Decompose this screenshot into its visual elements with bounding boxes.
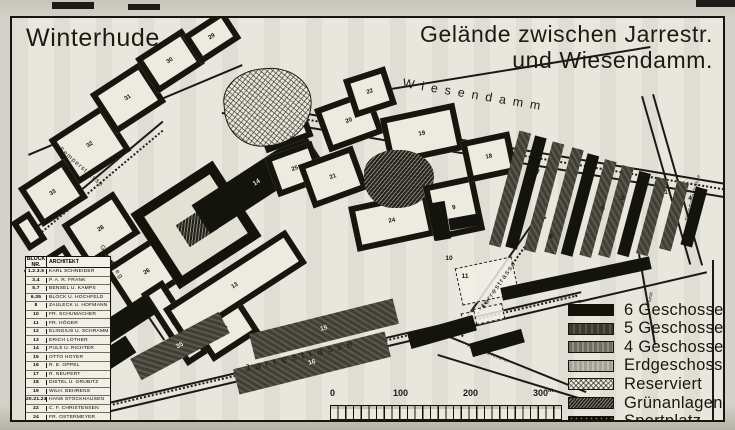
architect-row-name: Fr. Schumacher — [47, 312, 96, 317]
architect-row: 15Otto Hoyer — [26, 353, 110, 362]
scale-tick-200: 200 — [463, 388, 478, 398]
block-number: 30 — [166, 57, 175, 66]
block-number: 6 — [601, 206, 605, 213]
legend-item-g6: 6 Geschosse — [568, 302, 724, 318]
architect-row-block: 18 — [26, 380, 47, 385]
legend-item-gruen: Grünanlagen — [568, 395, 723, 411]
architect-table-rows: 1.2.3.5Karl Schneider3.4P. A. R. Frank5.… — [26, 268, 110, 422]
map-block-10: 10 — [442, 254, 456, 264]
architect-table-header-block: Block Nr. — [26, 256, 47, 268]
scanned-map-page: 3231302933282623427171413151635232025212… — [0, 0, 735, 430]
legend-swatch-res — [568, 378, 614, 390]
block-number: 33 — [49, 189, 58, 198]
legend-item-sport: Sportplatz — [568, 414, 701, 422]
legend-item-res: Reserviert — [568, 376, 702, 392]
map-title-right-line2: und Wiesendamm. — [420, 48, 713, 74]
architect-row: 6.35Block u. Hochfeld — [26, 294, 110, 303]
scan-smudge — [128, 4, 160, 10]
block-number: 18 — [485, 153, 493, 160]
legend-label: 5 Geschosse — [624, 319, 724, 338]
scale-unit: m — [548, 388, 553, 394]
block-number: 22 — [366, 88, 374, 96]
block-number: 8 — [549, 234, 553, 241]
legend-swatch-g4 — [568, 341, 614, 353]
architect-row-block: 16 — [26, 363, 47, 368]
legend-swatch-g6 — [568, 304, 614, 316]
architect-row-block: 10 — [26, 312, 47, 317]
scale-bar — [330, 405, 562, 420]
architect-row: 16R. E. Oppel — [26, 362, 110, 371]
block-number: 14 — [252, 178, 262, 187]
architect-row-block: 11 — [26, 321, 47, 326]
architect-row-name: Karl Schneider — [47, 269, 95, 274]
architect-table-header: Block Nr. Architekt — [26, 257, 110, 268]
map-block-11: 11 — [458, 272, 472, 282]
architect-row-block: 13 — [26, 338, 47, 343]
architect-row: 20.21.23Hans Stockhausen — [26, 396, 110, 405]
block-number: 3 — [620, 196, 624, 203]
architect-row-block: 19 — [26, 389, 47, 394]
legend-item-g5: 5 Geschosse — [568, 321, 724, 337]
block-number: 5 — [583, 198, 587, 205]
block-number: 15 — [320, 325, 329, 333]
map-block-5: 5 — [579, 196, 591, 206]
map-block-6: 6 — [597, 204, 609, 214]
block-number: 21 — [329, 173, 337, 181]
legend-label: Grünanlagen — [624, 394, 723, 413]
legend-swatch-sport — [568, 416, 614, 422]
legend-label: Erdgeschoss — [624, 356, 723, 375]
block-number: 13 — [231, 282, 240, 291]
architect-row-block: 20.21.23 — [26, 397, 47, 402]
block-number: 11 — [462, 274, 469, 281]
architect-row-block: 15 — [26, 355, 47, 360]
architect-row: 12Elingius u. Schramm — [26, 328, 110, 337]
architect-row-name: Elingius u. Schramm — [47, 329, 109, 334]
architect-row: 19Wilh. Behrens — [26, 388, 110, 397]
block-number: 2 — [638, 202, 642, 209]
block-number: 20 — [345, 117, 353, 125]
map-block-7: 7 — [532, 168, 544, 178]
scan-smudge — [696, 0, 735, 7]
map-block-1: 1 — [660, 188, 672, 198]
architect-row-name: Fr. Höger — [47, 321, 78, 326]
architect-row-name: R. Neupert — [47, 372, 81, 377]
block-number: 32 — [86, 141, 95, 150]
architect-row: 22C. F. Christensen — [26, 405, 110, 414]
scan-smudge — [52, 2, 94, 9]
block-number: 31 — [124, 94, 133, 103]
architect-row-block: 17 — [26, 372, 47, 377]
map-block-3: 3 — [616, 194, 628, 204]
architect-row-name: C. F. Christensen — [47, 406, 99, 411]
map-sheet: 3231302933282623427171413151635232025212… — [10, 16, 725, 422]
architect-row-name: P. A. R. Frank — [47, 278, 86, 283]
architect-row-name: Wilh. Behrens — [47, 389, 90, 394]
map-title-right: Gelände zwischen Jarrestr. und Wiesendam… — [420, 22, 713, 74]
architect-row: 24Fr. Ostermeyer — [26, 413, 110, 422]
architect-row-name: Distel u. Grubitz — [47, 380, 98, 385]
block-number: 9 — [452, 205, 457, 212]
block-number: 35 — [175, 341, 184, 350]
block-number: 16 — [308, 359, 317, 367]
architect-row: 8Zauleck u. Hofmann — [26, 302, 110, 311]
architect-row-name: Block u. Hochfeld — [47, 295, 104, 300]
architect-row: 5.7Bensel u. Kamps — [26, 285, 110, 294]
map-title-right-line1: Gelände zwischen Jarrestr. — [420, 22, 713, 48]
block-number: 24 — [388, 217, 396, 224]
block-number: 26 — [143, 268, 152, 277]
architect-row-name: Puls u. Richter — [47, 346, 94, 351]
architect-row-name: Hans Stockhausen — [47, 397, 104, 402]
legend-swatch-gruen — [568, 397, 614, 409]
architect-row: 3.4P. A. R. Frank — [26, 277, 110, 286]
block-number: 29 — [208, 33, 217, 42]
architect-row-name: Fr. Ostermeyer — [47, 415, 95, 420]
architect-row: 1.2.3.5Karl Schneider — [26, 268, 110, 277]
architect-row-name: Zauleck u. Hofmann — [47, 303, 108, 308]
legend-label: Sportplatz — [624, 412, 701, 422]
architect-row-block: 14 — [26, 346, 47, 351]
legend-item-g4: 4 Geschosse — [568, 339, 724, 355]
architect-row-name: R. E. Oppel — [47, 363, 80, 368]
map-block-8: 8 — [545, 232, 557, 242]
architect-row: 11Fr. Höger — [26, 319, 110, 328]
architect-row: 17R. Neupert — [26, 371, 110, 380]
map-title-left: Winterhude. — [26, 24, 167, 53]
scale-tick-0: 0 — [330, 388, 335, 398]
architect-row: 18Distel u. Grubitz — [26, 379, 110, 388]
architect-row-name: Bensel u. Kamps — [47, 286, 96, 291]
legend-label: 6 Geschosse — [624, 301, 724, 320]
block-number: 1 — [664, 190, 668, 197]
architect-table-header-architect: Architekt — [47, 259, 79, 265]
architect-row-name: Otto Hoyer — [47, 355, 83, 360]
map-block-2: 2 — [634, 200, 646, 210]
block-number: 10 — [445, 256, 452, 263]
architect-row-block: 6.35 — [26, 295, 47, 300]
architect-row-block: 3.4 — [26, 278, 47, 283]
architect-row-name: Erich Lother — [47, 338, 88, 343]
architect-row-block: 12 — [26, 329, 47, 334]
block-number: 19 — [418, 130, 426, 137]
block-number: 7 — [536, 170, 540, 177]
scale-tick-300: 300m — [533, 388, 553, 398]
architect-row-block: 8 — [26, 303, 47, 308]
architect-row: 14Puls u. Richter — [26, 345, 110, 354]
architect-row-block: 1.2.3.5 — [26, 269, 47, 274]
legend-swatch-g5 — [568, 323, 614, 335]
architect-row-block: 24 — [26, 415, 47, 420]
block-number: 28 — [97, 225, 106, 234]
architect-row: 10Fr. Schumacher — [26, 311, 110, 320]
map-shape — [473, 303, 506, 325]
architect-table: Block Nr. Architekt 1.2.3.5Karl Schneide… — [25, 256, 111, 422]
architect-row: 13Erich Lother — [26, 336, 110, 345]
legend-item-erd: Erdgeschoss — [568, 358, 723, 374]
scale-tick-100: 100 — [393, 388, 408, 398]
legend-label: Reserviert — [624, 375, 702, 394]
architect-row-block: 22 — [26, 406, 47, 411]
legend-swatch-erd — [568, 360, 614, 372]
architect-row-block: 5.7 — [26, 286, 47, 291]
legend-label: 4 Geschosse — [624, 338, 724, 357]
